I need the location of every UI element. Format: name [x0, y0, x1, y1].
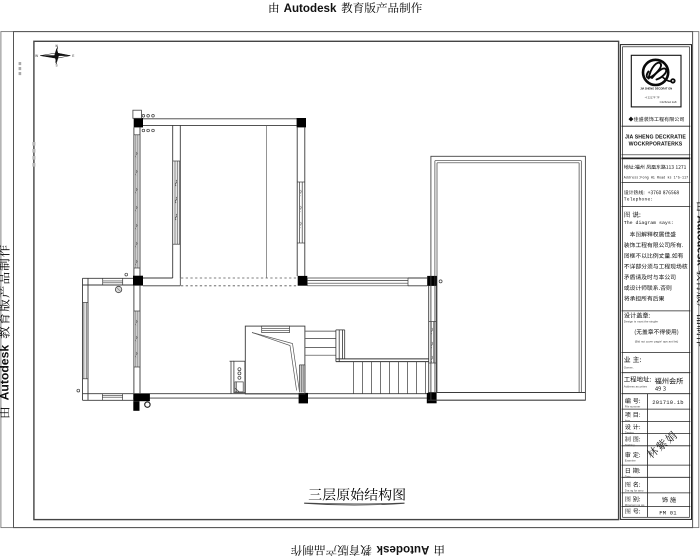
svg-text:FM 01: FM 01	[659, 509, 677, 516]
svg-text:C2262a4 2a8: C2262a4 2a8	[660, 100, 677, 104]
svg-text:S: S	[56, 64, 58, 68]
svg-text:(Bid not cover pagte' aps ant: (Bid not cover pagte' aps ant list)	[635, 339, 679, 343]
svg-text:Owner..: Owner..	[624, 365, 635, 369]
svg-text:201710.1b: 201710.1b	[652, 399, 684, 406]
svg-text:Design is most the singler: Design is most the singler	[624, 319, 658, 323]
svg-text:JIA SHENG DECORAT ON: JIA SHENG DECORAT ON	[640, 87, 672, 91]
svg-text:Autodesk: Autodesk	[695, 216, 700, 267]
svg-text:The diagram says:: The diagram says:	[624, 220, 674, 226]
svg-text:W: W	[35, 54, 38, 58]
svg-text:File summer: File summer	[625, 405, 640, 409]
svg-text:WOCKRPORATERKS: WOCKRPORATERKS	[629, 141, 683, 147]
svg-text:Drafting: Drafting	[625, 443, 635, 447]
svg-text:Dra ng for amo: Dra ng for amo	[625, 488, 644, 492]
svg-text:·4 2217F 7F: ·4 2217F 7F	[644, 95, 660, 99]
svg-text:Telephone:: Telephone:	[624, 197, 654, 203]
svg-text:JIA SHENG DECKRATIE: JIA SHENG DECKRATIE	[625, 135, 686, 141]
svg-text:Autodesk: Autodesk	[0, 345, 12, 401]
svg-text:Design: Design	[625, 431, 634, 435]
svg-text:Autodesk: Autodesk	[376, 543, 429, 556]
svg-text:Minwsum ss ws: Minwsum ss ws	[625, 503, 645, 507]
svg-text:Address as prites: Address as prites	[624, 385, 648, 389]
svg-text:Examine: Examine	[625, 459, 636, 463]
svg-text:Autodesk: Autodesk	[284, 2, 337, 15]
svg-text:Date: Date	[625, 474, 631, 478]
svg-text:E: E	[72, 54, 74, 58]
svg-text:Address:Fong Hi Road ks 1*5-11: Address:Fong Hi Road ks 1*5-117	[624, 175, 688, 179]
svg-text:Item: Item	[625, 418, 631, 422]
